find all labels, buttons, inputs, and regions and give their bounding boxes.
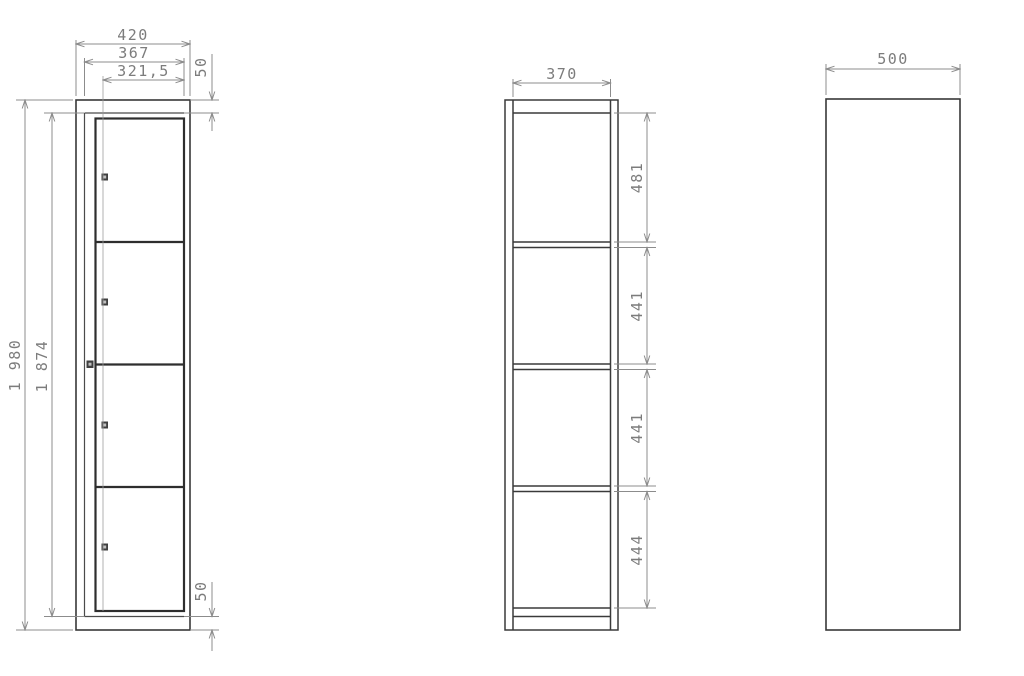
technical-drawing: 420 367 321,5 50 1 980 — [0, 0, 1024, 676]
dim-label: 420 — [117, 26, 149, 44]
dim-label: 367 — [118, 44, 150, 62]
door-lock-icon — [102, 174, 109, 181]
front-view: 420 367 321,5 50 1 980 — [6, 26, 219, 651]
section-view: 370 481 441 441 444 — [505, 65, 656, 630]
hinge-icon — [87, 361, 94, 369]
dim-label: 441 — [628, 290, 646, 322]
dim-label: 1 980 — [6, 339, 24, 392]
dim-label: 321,5 — [117, 62, 170, 80]
dim-label: 500 — [877, 50, 909, 68]
dim-label: 444 — [628, 534, 646, 566]
dim-label: 370 — [546, 65, 578, 83]
dim-label: 481 — [628, 162, 646, 194]
dim-section-compartments: 481 441 441 444 — [614, 113, 656, 608]
dim-label: 50 — [192, 580, 210, 601]
door-lock-icon — [102, 544, 109, 551]
section-shelf — [513, 486, 611, 492]
dim-label: 1 874 — [33, 340, 51, 393]
section-bottom-panel — [513, 608, 611, 617]
dim-label: 441 — [628, 412, 646, 444]
section-shelf — [513, 364, 611, 370]
section-shelf — [513, 242, 611, 248]
section-outline — [505, 100, 618, 630]
dim-label: 50 — [192, 56, 210, 77]
dim-section-inner-width: 370 — [513, 65, 611, 97]
door-lock-icon — [102, 422, 109, 429]
side-outline — [826, 99, 960, 630]
drawing-canvas: 420 367 321,5 50 1 980 — [0, 0, 1024, 676]
dim-side-depth: 500 — [826, 50, 960, 95]
side-view: 500 — [826, 50, 960, 630]
dim-front-door-width: 321,5 — [103, 62, 184, 611]
door-lock-icon — [102, 299, 109, 306]
